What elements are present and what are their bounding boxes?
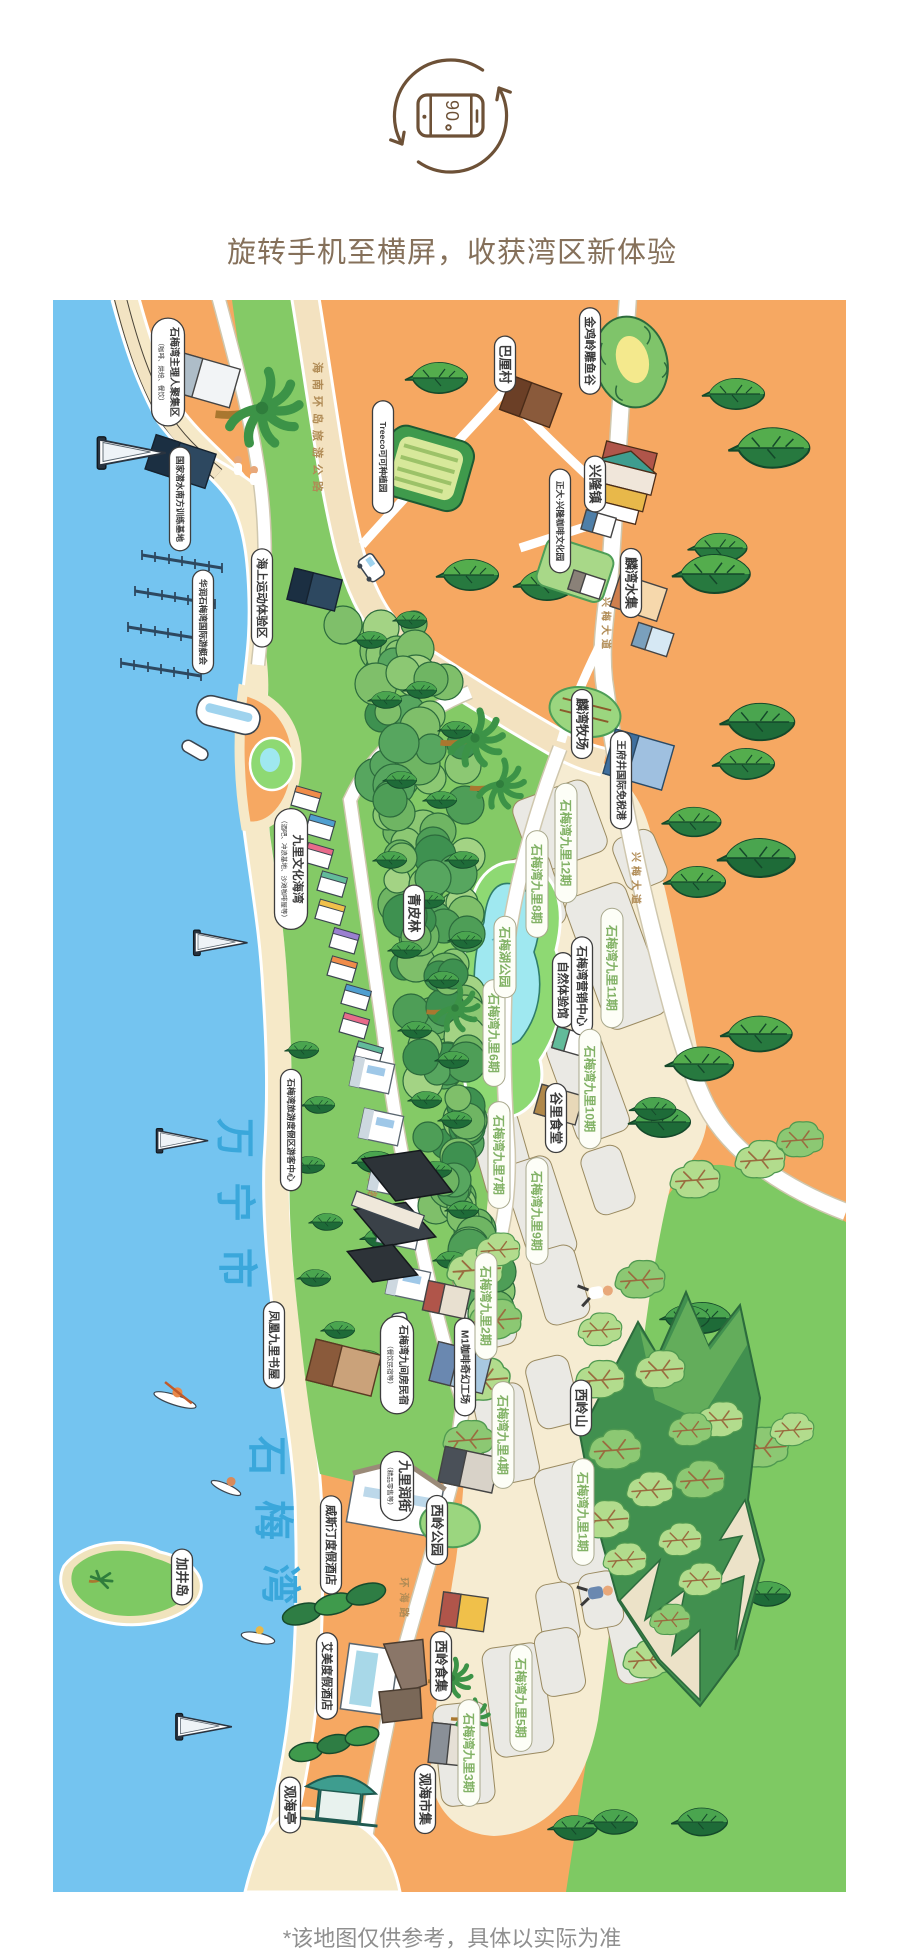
svg-text:九里文化海湾: 九里文化海湾	[291, 834, 305, 904]
svg-text:石梅湾旅游度假区游客中心: 石梅湾旅游度假区游客中心	[286, 1077, 297, 1182]
svg-text:*该地图仅供参考，具体以实际为准: *该地图仅供参考，具体以实际为准	[283, 1926, 622, 1951]
svg-text:麟湾水集: 麟湾水集	[623, 557, 638, 610]
svg-text:宁: 宁	[213, 1182, 257, 1222]
svg-text:石梅湾九里1期: 石梅湾九里1期	[576, 1471, 591, 1552]
svg-text:华润石梅湾国际游艇会: 华润石梅湾国际游艇会	[198, 579, 209, 665]
svg-text:海上运动体验区: 海上运动体验区	[255, 558, 269, 639]
svg-text:石梅湾九里11期: 石梅湾九里11期	[605, 924, 620, 1011]
svg-text:青皮林: 青皮林	[406, 893, 421, 932]
svg-text:凤凰九里书屋: 凤凰九里书屋	[267, 1311, 281, 1380]
svg-text:市: 市	[215, 1248, 259, 1288]
svg-text:石梅湾主理人聚集区: 石梅湾主理人聚集区	[168, 326, 181, 417]
svg-text:旋转手机至横屏，收获湾区新体验: 旋转手机至横屏，收获湾区新体验	[227, 236, 677, 269]
svg-text:石梅湾九里5期: 石梅湾九里5期	[514, 1657, 529, 1738]
svg-text:威斯汀度假酒店: 威斯汀度假酒店	[324, 1505, 338, 1586]
svg-text:石梅湾九里6期: 石梅湾九里6期	[487, 992, 502, 1073]
svg-text:（咖啡、烘焙、餐饮）: （咖啡、烘焙、餐饮）	[157, 340, 166, 405]
svg-text:石梅湾九里10期: 石梅湾九里10期	[583, 1045, 598, 1133]
svg-text:石梅湾九间房民宿: 石梅湾九间房民宿	[397, 1324, 410, 1405]
svg-text:石梅湾九里4期: 石梅湾九里4期	[496, 1394, 511, 1475]
svg-text:石梅湾营销中心: 石梅湾营销中心	[575, 945, 589, 1027]
svg-text:西岭山: 西岭山	[573, 1388, 588, 1427]
svg-text:正大·兴隆咖啡文化园: 正大·兴隆咖啡文化园	[555, 481, 566, 562]
svg-text:九里润街: 九里润街	[397, 1459, 412, 1512]
svg-text:（酒吧、冲浪基地、沙滩咖啡屋等）: （酒吧、冲浪基地、沙滩咖啡屋等）	[280, 817, 289, 921]
svg-text:90: 90	[442, 100, 462, 122]
svg-text:金鸡岭雕鱼谷: 金鸡岭雕鱼谷	[583, 316, 597, 386]
svg-text:王府井国际免税港: 王府井国际免税港	[614, 740, 627, 821]
svg-text:M1咖啡奇幻工场: M1咖啡奇幻工场	[458, 1330, 471, 1404]
svg-text:自然体验馆: 自然体验馆	[556, 961, 570, 1019]
svg-text:湾: 湾	[258, 1564, 303, 1604]
svg-text:观海市集: 观海市集	[417, 1773, 432, 1826]
svg-text:观海亭: 观海亭	[282, 1785, 297, 1824]
svg-text:兴隆镇: 兴隆镇	[587, 464, 602, 503]
svg-text:西岭公园: 西岭公园	[429, 1504, 444, 1556]
svg-text:万: 万	[213, 1118, 257, 1158]
svg-text:海南环岛旅游公路: 海南环岛旅游公路	[311, 362, 325, 498]
svg-text:兴梅大道: 兴梅大道	[629, 852, 642, 908]
svg-text:石: 石	[245, 1436, 289, 1476]
svg-text:石梅湾九里7期: 石梅湾九里7期	[492, 1114, 507, 1195]
svg-text:（精品零售等）: （精品零售等）	[386, 1463, 395, 1509]
svg-text:艾美度假酒店: 艾美度假酒店	[320, 1642, 334, 1711]
svg-text:石梅湾九里12期: 石梅湾九里12期	[559, 799, 574, 887]
svg-text:石梅湾九里9期: 石梅湾九里9期	[530, 1170, 545, 1251]
svg-text:环海路: 环海路	[397, 1578, 410, 1623]
svg-text:石梅湾九里8期: 石梅湾九里8期	[530, 843, 545, 924]
svg-text:麟湾牧场: 麟湾牧场	[574, 698, 589, 750]
svg-text:石梅湾九里3期: 石梅湾九里3期	[462, 1712, 477, 1793]
svg-text:石梅湖公园: 石梅湖公园	[498, 926, 513, 988]
svg-text:加井岛: 加井岛	[174, 1556, 189, 1596]
svg-text:西岭食集: 西岭食集	[433, 1640, 448, 1693]
svg-text:巴厘村: 巴厘村	[497, 344, 512, 383]
svg-text:Treeco可可种植园: Treeco可可种植园	[378, 422, 389, 493]
svg-text:石梅湾九里2期: 石梅湾九里2期	[479, 1265, 494, 1346]
svg-text:（餐饮民宿等）: （餐饮民宿等）	[386, 1342, 395, 1388]
svg-text:国家潜水南方训练基地: 国家潜水南方训练基地	[175, 456, 186, 542]
svg-text:梅: 梅	[251, 1500, 295, 1540]
svg-text:谷里食堂: 谷里食堂	[548, 1092, 563, 1144]
